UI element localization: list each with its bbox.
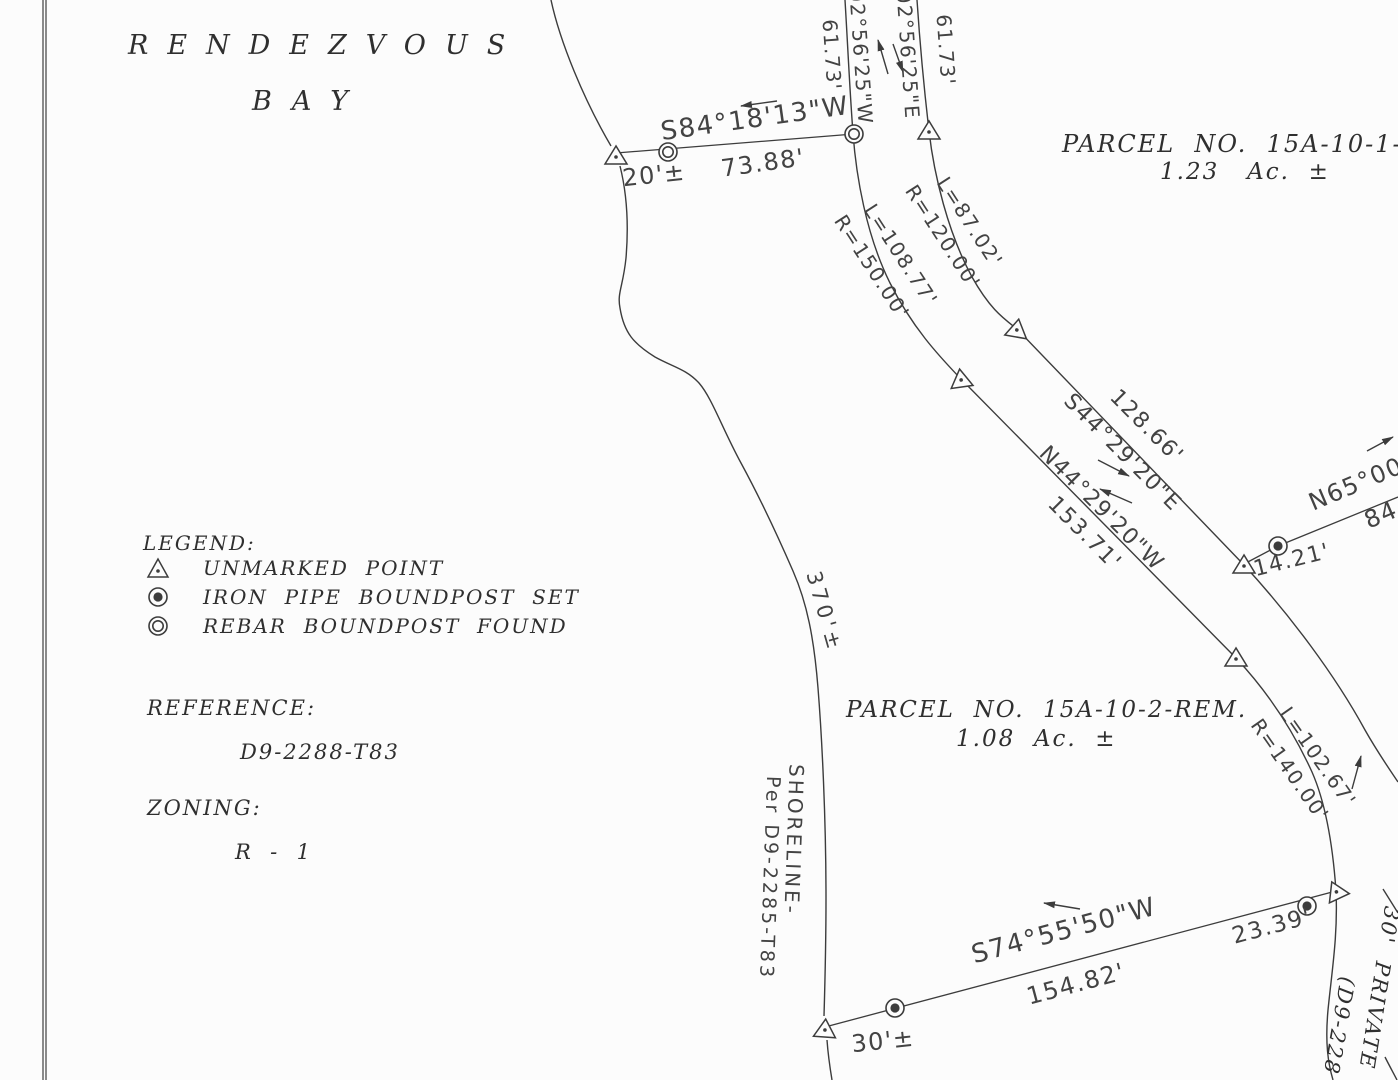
parcel2-name: PARCEL NO. 15A-10-2-REM. — [846, 697, 1247, 723]
legend-row-rebar: REBAR BOUNDPOST FOUND — [145, 614, 568, 638]
tie-30-label: 30'± — [850, 1026, 915, 1056]
len-6173-west-label: 61.73' — [820, 19, 845, 92]
parcel2-area: 1.08 Ac. ± — [956, 726, 1117, 752]
unmarked-point-symbols — [605, 121, 1349, 1038]
s74-arrow — [1044, 903, 1080, 909]
bay-name-line2: BAY — [252, 86, 368, 117]
parcel1-name: PARCEL NO. 15A-10-1-RE — [1062, 131, 1398, 159]
unmarked-point-icon — [145, 556, 171, 580]
shoreline-label: SHORELINE- — [781, 764, 806, 916]
legend-label-unmarked: UNMARKED POINT — [203, 557, 444, 580]
reference-heading: REFERENCE: — [147, 696, 316, 720]
rebar-icon — [145, 614, 171, 638]
sheet-border — [43, 0, 46, 1080]
zoning-heading: ZONING: — [147, 796, 262, 820]
len-6173-east-label: 61.73' — [934, 14, 959, 87]
parcel1-area: 1.23 Ac. ± — [1160, 159, 1330, 185]
b02e-arrow — [878, 40, 888, 74]
road-curve-arrow — [1352, 756, 1361, 789]
legend-row-iron-pipe: IRON PIPE BOUNDPOST SET — [145, 585, 580, 609]
legend-row-unmarked: UNMARKED POINT — [145, 556, 444, 580]
legend-heading: LEGEND: — [143, 532, 256, 555]
zoning-value: R - 1 — [235, 840, 312, 864]
boundary-lines — [616, 134, 1398, 1027]
n65-arrow — [1367, 437, 1393, 451]
bay-name-line1: RENDEZVOUS — [128, 30, 524, 61]
reference-value: D9-2288-T83 — [240, 740, 400, 764]
iron-pipe-icon — [145, 585, 171, 609]
tie-20-label: 20'± — [621, 160, 686, 190]
legend-label-rebar: REBAR BOUNDPOST FOUND — [203, 615, 568, 638]
survey-plat-sheet: RENDEZVOUS BAY PARCEL NO. 15A-10-1-RE 1.… — [0, 0, 1398, 1080]
legend-label-iron-pipe: IRON PIPE BOUNDPOST SET — [203, 586, 580, 609]
